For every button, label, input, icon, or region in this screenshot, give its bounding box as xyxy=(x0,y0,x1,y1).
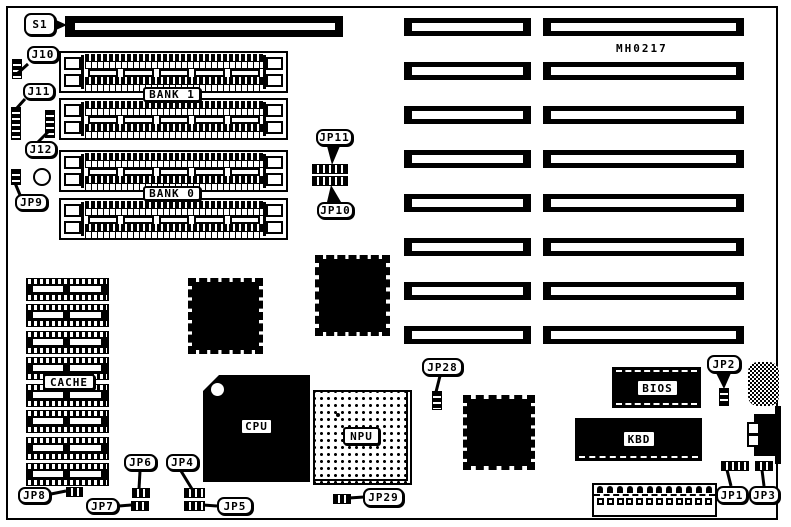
callout-pointer-lines xyxy=(0,0,791,527)
callout-jp7: JP7 xyxy=(86,498,119,514)
motherboard-diagram: MH0217 xyxy=(0,0,791,527)
callout-jp3: JP3 xyxy=(749,486,780,504)
npu-pin1-mark xyxy=(336,413,340,417)
label-bank1: BANK 1 xyxy=(143,87,201,102)
label-npu: NPU xyxy=(343,427,380,445)
callout-s1: S1 xyxy=(24,13,56,36)
callout-jp6: JP6 xyxy=(124,454,157,471)
callout-jp28: JP28 xyxy=(422,358,463,376)
callout-j11: J11 xyxy=(23,83,55,100)
callout-jp29: JP29 xyxy=(363,488,404,507)
label-bank0: BANK 0 xyxy=(143,186,201,201)
callout-j12: J12 xyxy=(25,141,57,158)
callout-jp5: JP5 xyxy=(217,497,253,515)
label-bios: BIOS xyxy=(636,379,679,397)
callout-jp9: JP9 xyxy=(15,194,48,211)
callout-j10: J10 xyxy=(27,46,59,63)
callout-jp2: JP2 xyxy=(707,355,741,373)
callout-jp10: JP10 xyxy=(317,202,354,219)
callout-jp1: JP1 xyxy=(716,486,748,504)
callout-jp8: JP8 xyxy=(18,487,51,504)
callout-jp4: JP4 xyxy=(166,454,199,471)
callout-jp11: JP11 xyxy=(316,129,353,146)
label-cpu: CPU xyxy=(240,418,273,435)
label-cache: CACHE xyxy=(43,374,95,390)
label-kbd: KBD xyxy=(622,430,656,448)
